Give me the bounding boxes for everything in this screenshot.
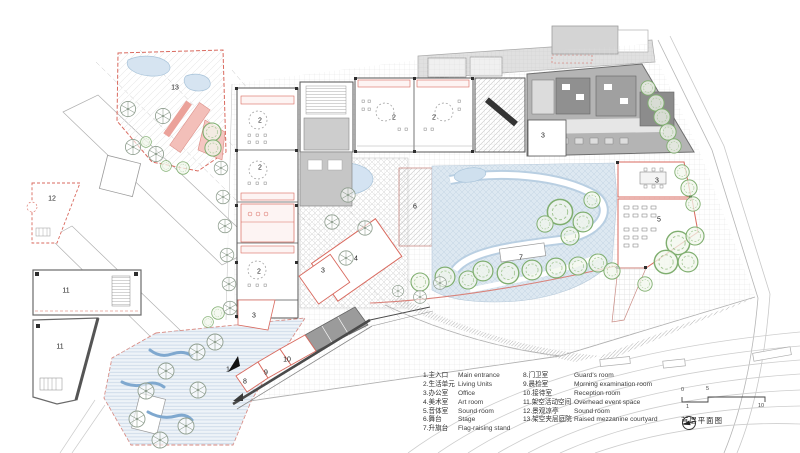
legend-zh: 7.升旗台 <box>423 425 458 434</box>
legend-item: 11.架空活动空间Overhead event space <box>523 399 693 408</box>
legend: 1.主入口Main entrance 2.生活单元Living Units 3.… <box>423 372 693 434</box>
legend-en: Sound room <box>458 408 494 417</box>
legend-item: 1.主入口Main entrance <box>423 372 523 381</box>
scale-label: 0 <box>681 388 684 394</box>
legend-en: Reception room <box>574 390 621 399</box>
scale-bar-labels: 0 5 1 10 <box>678 388 773 414</box>
top-living-units <box>355 78 473 152</box>
legend-en: Raised mezzanine courtyard <box>574 416 658 425</box>
legend-item: 13.架空夹层庭院Raised mezzanine courtyard <box>523 416 693 425</box>
legend-en: Office <box>458 390 475 399</box>
legend-zh: 3.办公室 <box>423 390 458 399</box>
floor-plan-sheet: 13121111222223356743310981 1.主入口Main ent… <box>0 0 800 453</box>
entrance-hall <box>475 78 525 152</box>
building-11a <box>33 270 141 315</box>
left-wing-living-units <box>237 88 298 330</box>
legend-item: 4.美术室Art room <box>423 399 523 408</box>
legend-zh: 13.架空夹层庭院 <box>523 416 574 425</box>
legend-en: Living Units <box>458 381 492 390</box>
legend-zh: 10.接待室 <box>523 390 574 399</box>
legend-en: Stage <box>458 416 475 425</box>
legend-item: 2.生活单元Living Units <box>423 381 523 390</box>
legend-zh: 11.架空活动空间 <box>523 399 574 408</box>
legend-en: Main entrance <box>458 372 500 381</box>
scale-label: 1 <box>686 405 689 411</box>
legend-zh: 9.晨检室 <box>523 381 574 390</box>
scale-label: 10 <box>758 404 764 410</box>
legend-zh: 8.门卫室 <box>523 372 574 381</box>
legend-en: Morning examination room <box>574 381 652 390</box>
legend-item: 7.升旗台Flag-raising stand <box>423 425 523 434</box>
scale-label: 5 <box>706 387 709 393</box>
legend-item: 3.办公室Office <box>423 390 523 399</box>
stage <box>399 168 432 246</box>
legend-en: Guard's room <box>574 372 614 381</box>
legend-item: 9.晨检室Morning examination room <box>523 381 693 390</box>
legend-item: 8.门卫室Guard's room <box>523 372 693 381</box>
legend-item: 6.舞台Stage <box>423 416 523 425</box>
legend-column-2: 8.门卫室Guard's room 9.晨检室Morning examinati… <box>523 372 693 434</box>
north-arrow-icon <box>681 415 697 431</box>
legend-zh: 1.主入口 <box>423 372 458 381</box>
title-block: 首层平面图 <box>681 415 723 426</box>
legend-column-1: 1.主入口Main entrance 2.生活单元Living Units 3.… <box>423 372 523 434</box>
building-11b <box>33 318 98 404</box>
legend-item: 10.接待室Reception room <box>523 390 693 399</box>
legend-en: Art room <box>458 399 483 408</box>
legend-zh: 4.美术室 <box>423 399 458 408</box>
legend-en: Overhead event space <box>574 399 640 408</box>
legend-zh: 2.生活单元 <box>423 381 458 390</box>
stair-core <box>300 82 353 206</box>
legend-en: Flag-raising stand <box>458 425 510 434</box>
legend-en: Sound room <box>574 408 610 417</box>
